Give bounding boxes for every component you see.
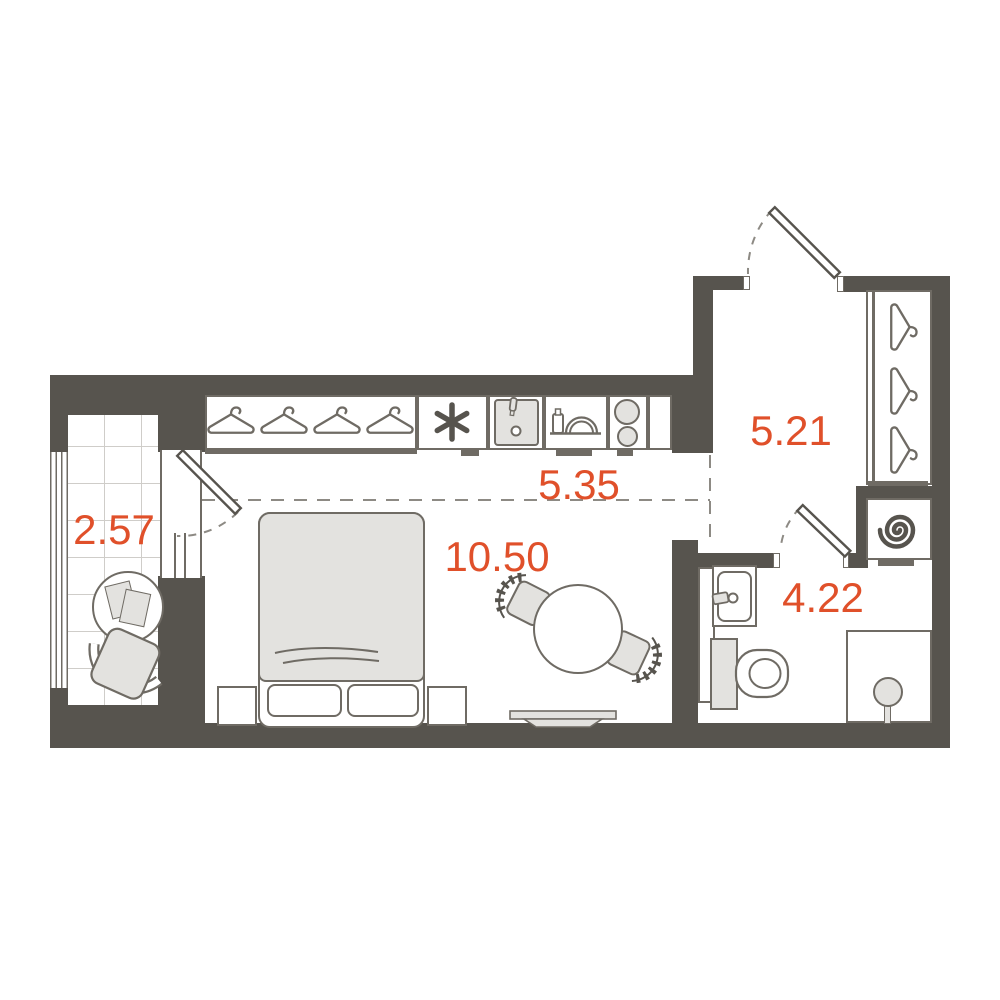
- wall-top-main: [158, 375, 713, 397]
- wall-right: [932, 276, 950, 748]
- room-label-bathroom: 4.22: [782, 577, 864, 619]
- balcony-window-sill-icon: [174, 533, 186, 578]
- washing-machine-foot: [878, 560, 914, 566]
- bed-blanket: [258, 512, 425, 682]
- dining-table-icon: [533, 584, 623, 674]
- door-leaf-icon: [769, 207, 840, 278]
- balcony-window-icon: [50, 452, 68, 688]
- wall-bottom-main: [50, 723, 950, 748]
- zone-divider-dashed-line: [709, 455, 711, 540]
- washing-machine-icon: [866, 498, 932, 560]
- stove-burner-icon: [614, 399, 640, 425]
- door-frame-notch: [743, 276, 750, 290]
- dish-rack-unit: [544, 395, 608, 450]
- room-label-kitchen: 5.35: [538, 464, 620, 506]
- counter-end-unit: [648, 395, 672, 450]
- door-leaf-icon: [797, 505, 850, 556]
- door-swing-arc: [781, 508, 800, 545]
- wall-left-upper: [50, 375, 68, 455]
- kitchen-sink-basin: [494, 399, 539, 446]
- washbasin-bowl: [717, 571, 752, 622]
- balcony-tile-floor: [68, 415, 160, 705]
- door-frame-notch: [773, 553, 780, 568]
- toilet-tank: [710, 638, 738, 710]
- zone-divider-dashed-line: [202, 499, 710, 501]
- room-label-sleeping: 10.50: [444, 536, 549, 578]
- hall-wardrobe-unit: [866, 290, 932, 485]
- room-label-balcony: 2.57: [73, 509, 155, 551]
- wall-divider-bottom: [158, 576, 205, 725]
- room-label-hallway: 5.21: [750, 410, 832, 452]
- door-frame-notch: [837, 276, 844, 292]
- door-frame-notch: [843, 553, 849, 568]
- hall-wardrobe-base: [868, 481, 928, 486]
- closet-hangers-unit: [205, 395, 417, 450]
- hall-wardrobe-inner-line: [872, 292, 875, 483]
- shower-drain-icon: [873, 677, 903, 707]
- wall-hall-left: [693, 276, 713, 397]
- door-swing-arc: [748, 210, 772, 274]
- stove-burner-icon: [617, 426, 638, 447]
- fridge-unit: [417, 395, 488, 450]
- pillow-icon: [267, 684, 342, 717]
- wall-kitchen-right: [672, 397, 713, 453]
- nightstand-icon: [217, 686, 257, 726]
- pillow-icon: [347, 684, 419, 717]
- toilet-icon: [736, 650, 788, 697]
- nightstand-icon: [427, 686, 467, 726]
- closet-base-line: [205, 450, 417, 454]
- counter-foot: [617, 450, 633, 456]
- counter-foot: [556, 450, 592, 456]
- floor-plan: 2.57 5.35 10.50 5.21 4.22: [0, 0, 1000, 1000]
- counter-foot: [461, 450, 479, 456]
